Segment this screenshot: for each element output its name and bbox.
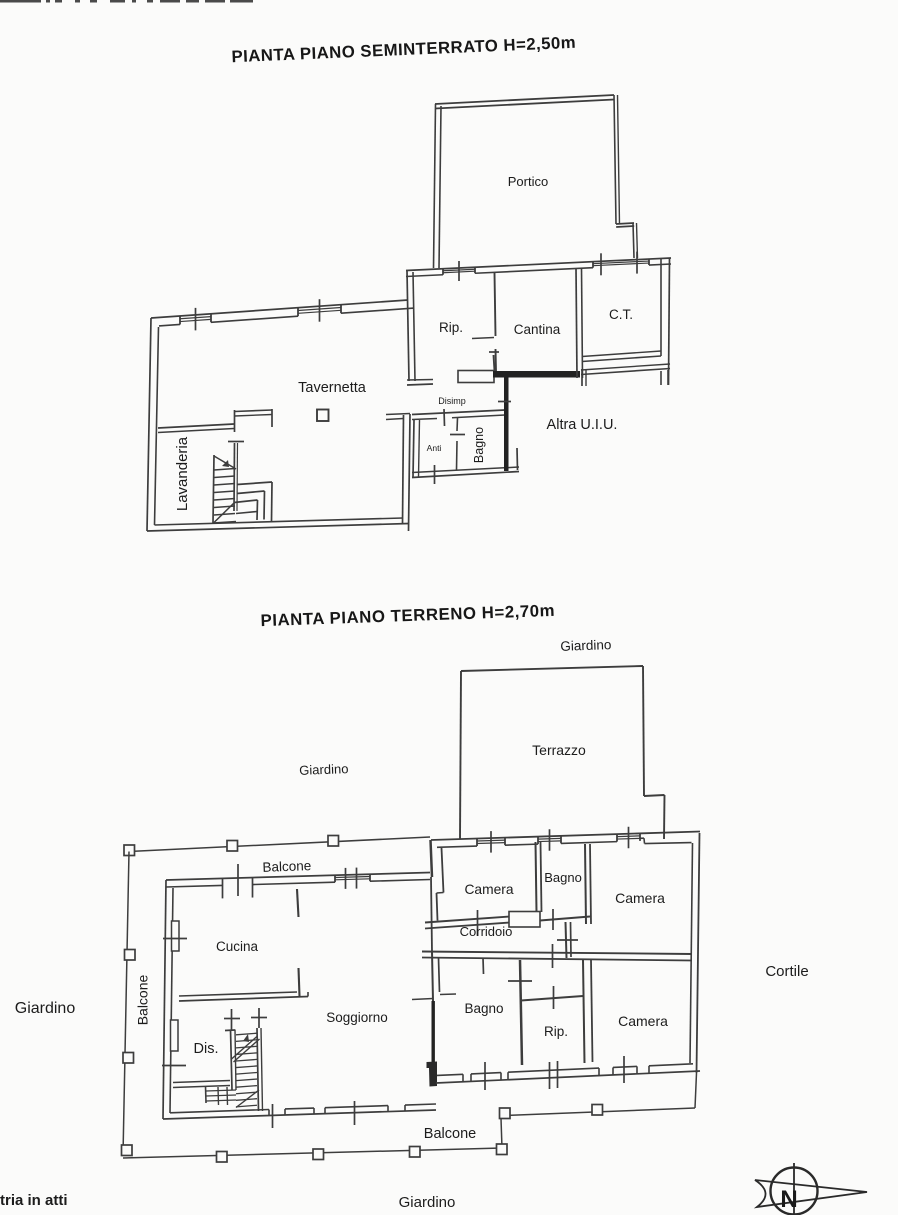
svg-text:Rip.: Rip. — [544, 1024, 568, 1039]
svg-text:Soggiorno: Soggiorno — [326, 1010, 388, 1025]
svg-text:Balcone: Balcone — [262, 858, 311, 875]
svg-text:C.T.: C.T. — [609, 307, 633, 322]
svg-text:Bagno: Bagno — [472, 427, 486, 463]
svg-text:Dis.: Dis. — [194, 1041, 219, 1057]
svg-text:Cantina: Cantina — [514, 322, 561, 337]
svg-text:Terrazzo: Terrazzo — [532, 742, 586, 758]
svg-text:Camera: Camera — [618, 1013, 668, 1029]
svg-text:Tavernetta: Tavernetta — [298, 380, 367, 396]
svg-text:Cortile: Cortile — [765, 963, 808, 980]
svg-text:Disimp: Disimp — [438, 396, 466, 406]
svg-text:PIANTA PIANO TERRENO H=2,70m: PIANTA PIANO TERRENO H=2,70m — [260, 601, 555, 630]
svg-text:Giardino: Giardino — [399, 1194, 456, 1211]
svg-text:Camera: Camera — [464, 882, 513, 897]
svg-text:N: N — [780, 1186, 797, 1213]
svg-text:Anti: Anti — [427, 443, 442, 453]
svg-text:Lavanderia: Lavanderia — [174, 436, 191, 511]
svg-text:Bagno: Bagno — [464, 1001, 503, 1016]
svg-text:Altra U.I.U.: Altra U.I.U. — [547, 417, 618, 433]
svg-text:Balcone: Balcone — [135, 974, 151, 1025]
svg-text:Camera: Camera — [615, 890, 665, 906]
svg-text:Giardino: Giardino — [299, 761, 349, 778]
svg-text:Bagno: Bagno — [544, 870, 582, 885]
svg-text:tria in atti: tria in atti — [0, 1192, 68, 1209]
svg-text:Rip.: Rip. — [439, 320, 463, 335]
svg-text:Corridoio: Corridoio — [460, 924, 513, 939]
svg-text:Giardino: Giardino — [15, 1000, 76, 1017]
svg-text:PIANTA PIANO SEMINTERRATO H=2: PIANTA PIANO SEMINTERRATO H=2,50m — [231, 33, 576, 66]
svg-text:Portico: Portico — [508, 174, 548, 189]
svg-text:Cucina: Cucina — [216, 939, 259, 954]
svg-text:Giardino: Giardino — [560, 637, 612, 654]
svg-text:Balcone: Balcone — [424, 1126, 476, 1142]
